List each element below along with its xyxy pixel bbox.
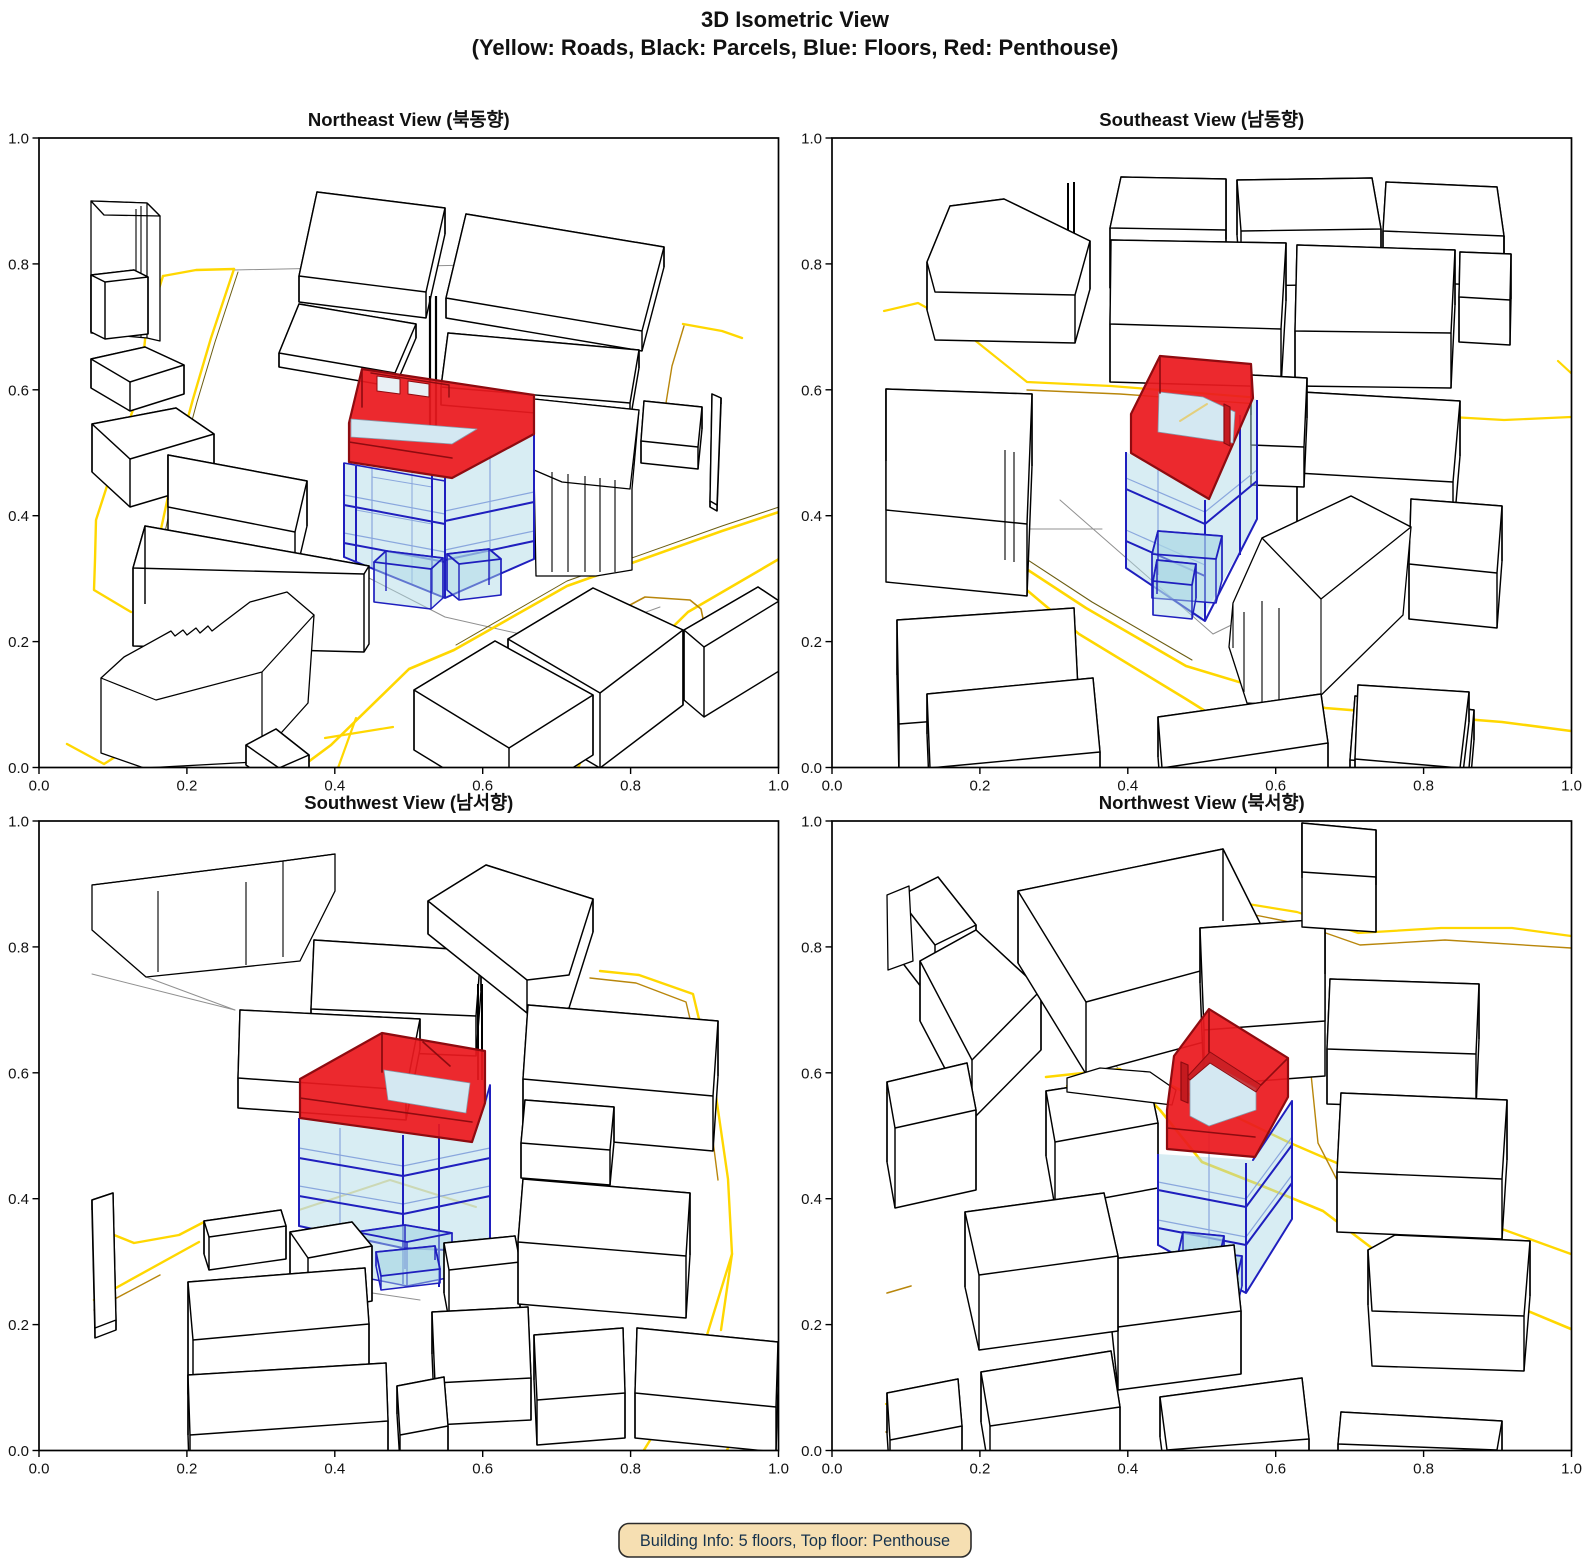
svg-text:0.8: 0.8 <box>620 778 641 795</box>
svg-text:0.8: 0.8 <box>8 256 29 273</box>
svg-text:Northeast View (북동향): Northeast View (북동향) <box>308 109 510 130</box>
svg-text:1.0: 1.0 <box>1561 778 1582 795</box>
svg-text:0.0: 0.0 <box>29 1461 50 1478</box>
svg-text:1.0: 1.0 <box>801 814 822 831</box>
svg-text:0.2: 0.2 <box>969 1461 990 1478</box>
svg-text:0.2: 0.2 <box>176 778 197 795</box>
svg-text:0.4: 0.4 <box>8 508 29 525</box>
svg-text:0.0: 0.0 <box>801 760 822 777</box>
svg-text:Southeast View (남동향): Southeast View (남동향) <box>1099 109 1304 130</box>
svg-text:0.6: 0.6 <box>801 382 822 399</box>
svg-text:0.8: 0.8 <box>801 939 822 956</box>
svg-text:0.8: 0.8 <box>1413 778 1434 795</box>
svg-text:1.0: 1.0 <box>768 778 789 795</box>
svg-text:1.0: 1.0 <box>1561 1461 1582 1478</box>
svg-text:0.8: 0.8 <box>1413 1461 1434 1478</box>
svg-text:0.4: 0.4 <box>324 1461 345 1478</box>
svg-text:0.4: 0.4 <box>8 1191 29 1208</box>
svg-text:0.0: 0.0 <box>8 1443 29 1460</box>
svg-text:1.0: 1.0 <box>768 1461 789 1478</box>
svg-text:0.6: 0.6 <box>1265 1461 1286 1478</box>
svg-text:0.6: 0.6 <box>8 1065 29 1082</box>
svg-text:0.6: 0.6 <box>472 1461 493 1478</box>
svg-text:0.8: 0.8 <box>801 256 822 273</box>
svg-text:0.2: 0.2 <box>969 778 990 795</box>
svg-text:0.0: 0.0 <box>822 1461 843 1478</box>
svg-text:0.8: 0.8 <box>620 1461 641 1478</box>
svg-text:0.2: 0.2 <box>8 634 29 651</box>
svg-text:Southwest View (남서향): Southwest View (남서향) <box>304 792 513 813</box>
svg-text:1.0: 1.0 <box>801 131 822 148</box>
svg-text:(Yellow: Roads, Black: Parcels: (Yellow: Roads, Black: Parcels, Blue: Fl… <box>472 35 1119 60</box>
svg-text:Northwest View (북서향): Northwest View (북서향) <box>1099 792 1305 813</box>
svg-text:0.0: 0.0 <box>29 778 50 795</box>
svg-text:0.2: 0.2 <box>176 1461 197 1478</box>
svg-text:3D Isometric View: 3D Isometric View <box>701 7 890 32</box>
svg-text:0.0: 0.0 <box>8 760 29 777</box>
svg-text:0.6: 0.6 <box>801 1065 822 1082</box>
svg-text:Building Info: 5 floors, Top f: Building Info: 5 floors, Top floor: Pent… <box>640 1532 950 1550</box>
svg-text:0.2: 0.2 <box>801 634 822 651</box>
svg-text:0.4: 0.4 <box>801 1191 822 1208</box>
svg-text:1.0: 1.0 <box>8 131 29 148</box>
svg-text:0.8: 0.8 <box>8 939 29 956</box>
svg-text:0.2: 0.2 <box>8 1317 29 1334</box>
svg-text:0.6: 0.6 <box>8 382 29 399</box>
svg-text:1.0: 1.0 <box>8 814 29 831</box>
svg-text:0.0: 0.0 <box>822 778 843 795</box>
svg-text:0.0: 0.0 <box>801 1443 822 1460</box>
svg-text:0.4: 0.4 <box>1117 1461 1138 1478</box>
svg-text:0.4: 0.4 <box>801 508 822 525</box>
svg-text:0.2: 0.2 <box>801 1317 822 1334</box>
